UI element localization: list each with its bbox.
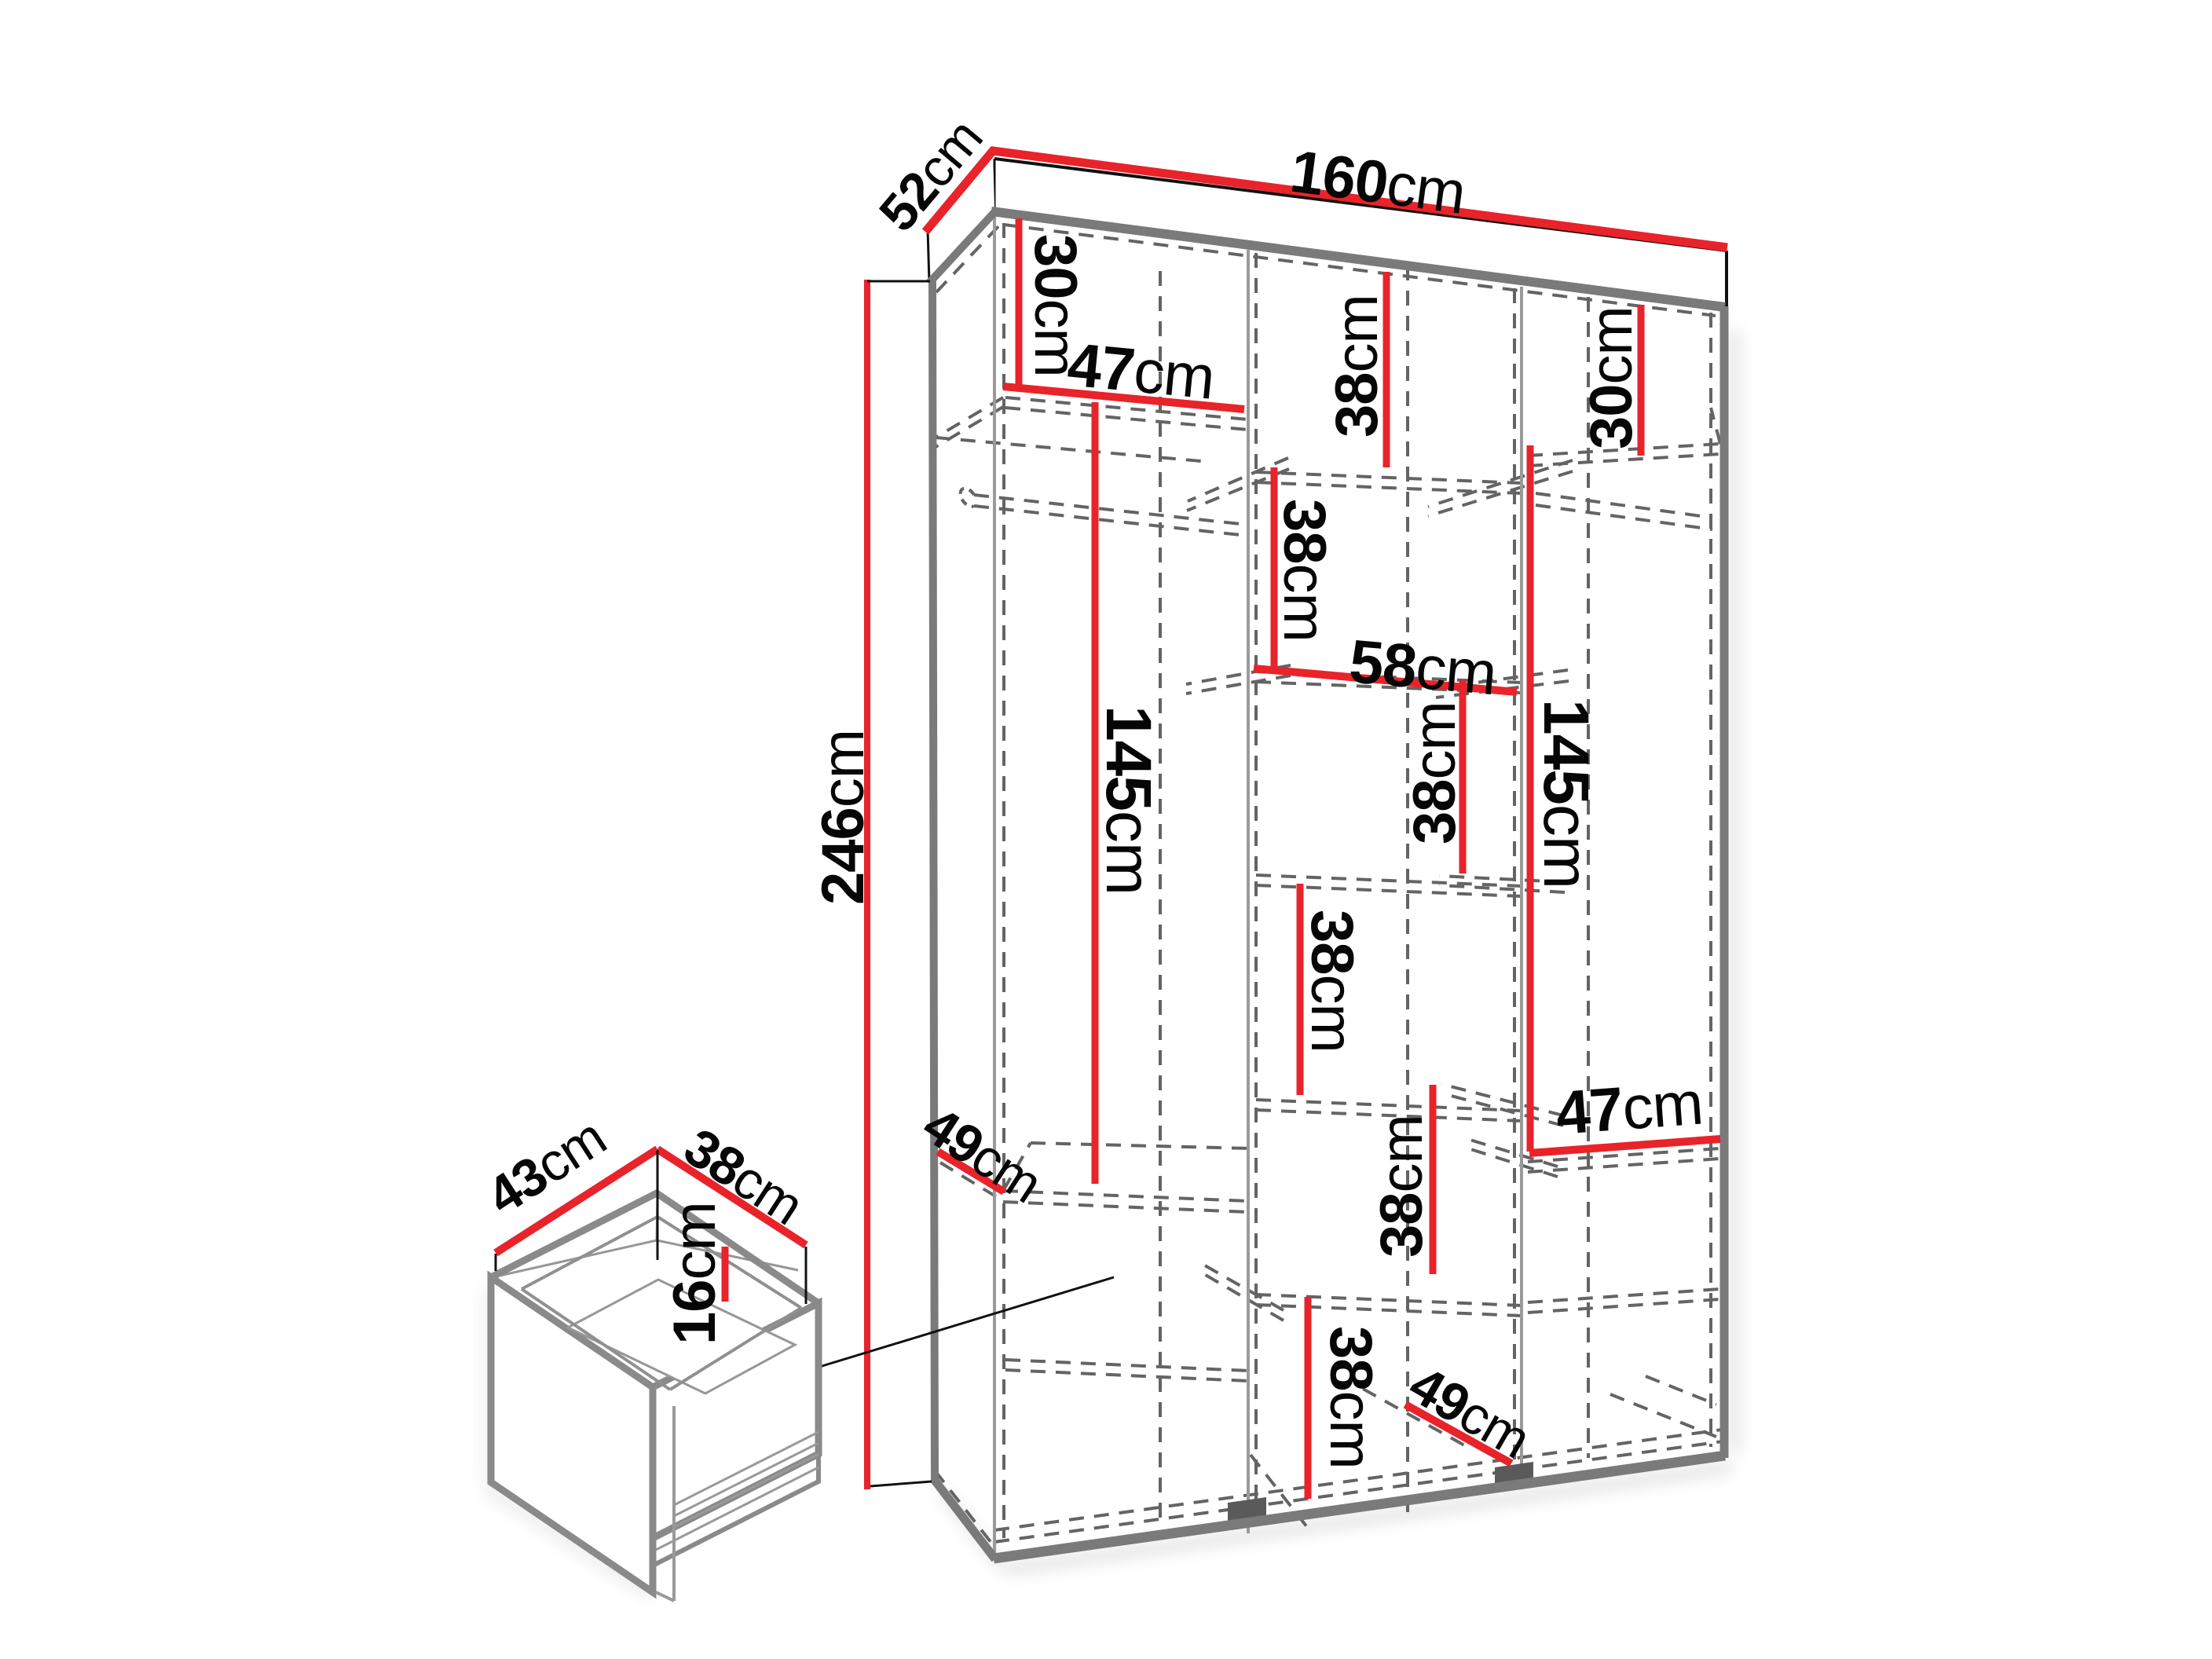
svg-text:47cm: 47cm: [1064, 329, 1217, 412]
svg-text:38cm: 38cm: [1401, 701, 1468, 844]
svg-text:246cm: 246cm: [810, 730, 877, 905]
svg-text:38cm: 38cm: [1298, 910, 1365, 1053]
svg-text:38cm: 38cm: [1317, 1326, 1384, 1469]
svg-text:145cm: 145cm: [1530, 699, 1602, 888]
svg-text:145cm: 145cm: [1093, 705, 1164, 895]
svg-text:38cm: 38cm: [1271, 499, 1338, 642]
svg-text:30cm: 30cm: [1578, 306, 1645, 449]
svg-text:38cm: 38cm: [1368, 1115, 1435, 1258]
svg-text:16cm: 16cm: [661, 1202, 728, 1345]
svg-text:38cm: 38cm: [1324, 295, 1390, 438]
svg-text:58cm: 58cm: [1347, 626, 1500, 708]
svg-text:47cm: 47cm: [1554, 1068, 1705, 1148]
